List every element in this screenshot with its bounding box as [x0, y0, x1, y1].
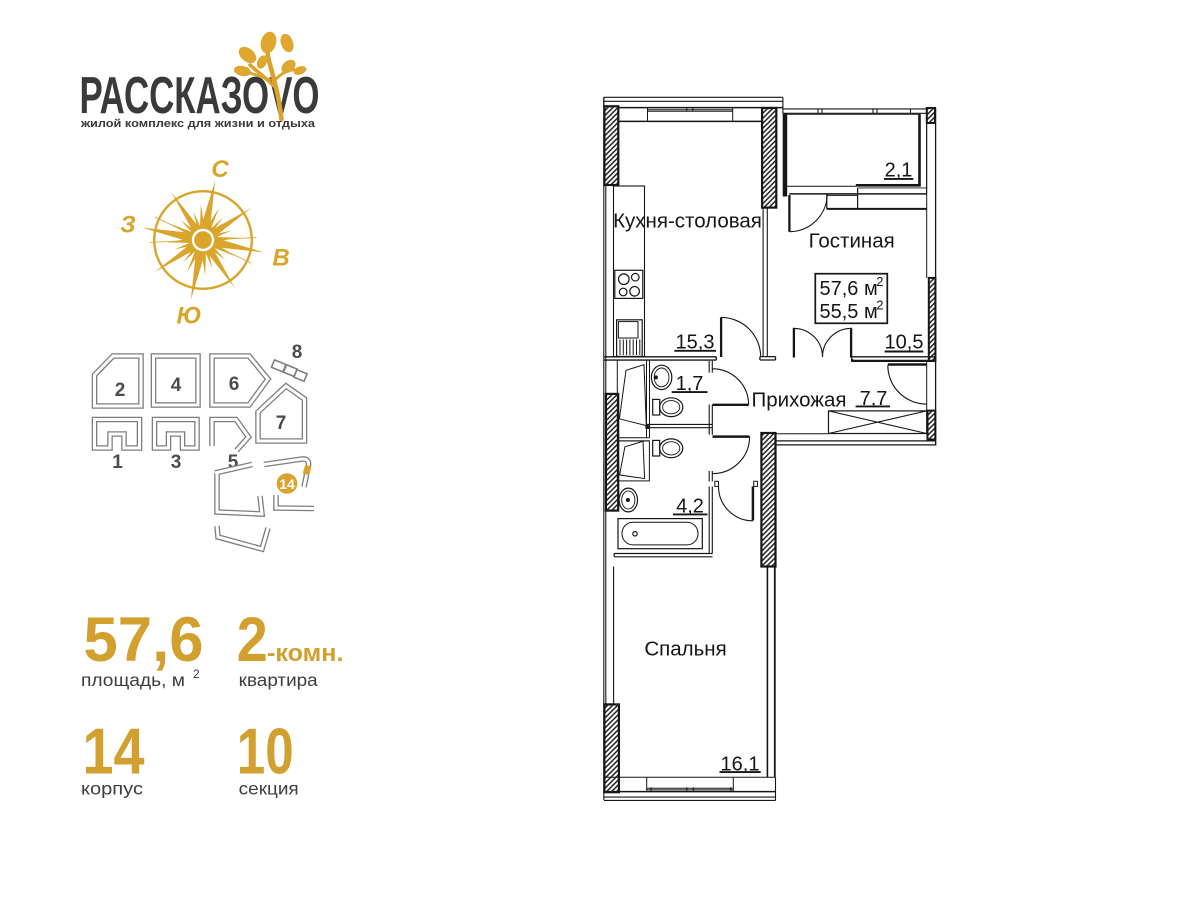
- svg-text:Спальня: Спальня: [644, 637, 726, 660]
- svg-text:4: 4: [171, 375, 182, 396]
- svg-text:-комн.: -комн.: [267, 640, 344, 667]
- svg-text:10,5: 10,5: [885, 332, 924, 354]
- svg-text:Кухня-столовая: Кухня-столовая: [613, 210, 762, 233]
- svg-text:8: 8: [292, 342, 303, 363]
- svg-text:В: В: [272, 245, 289, 272]
- svg-text:3: 3: [171, 452, 182, 473]
- svg-text:2: 2: [876, 297, 883, 312]
- svg-text:Гостиная: Гостиная: [809, 230, 895, 253]
- svg-text:2: 2: [115, 380, 126, 401]
- svg-text:57,6: 57,6: [84, 605, 204, 675]
- svg-text:6: 6: [229, 374, 240, 395]
- svg-text:Прихожая: Прихожая: [752, 388, 847, 411]
- svg-text:14: 14: [279, 476, 295, 492]
- svg-text:С: С: [211, 156, 229, 183]
- svg-text:7: 7: [276, 413, 287, 434]
- svg-text:2: 2: [237, 605, 268, 675]
- svg-text:площадь, м: площадь, м: [81, 670, 185, 690]
- svg-text:2: 2: [193, 667, 200, 681]
- svg-text:14: 14: [83, 716, 145, 788]
- svg-text:РАССКАЗОVO: РАССКАЗОVO: [80, 67, 320, 125]
- svg-text:корпус: корпус: [81, 779, 143, 799]
- svg-text:жилой комплекс для жизни и отд: жилой комплекс для жизни и отдыха: [80, 118, 316, 130]
- svg-text:секция: секция: [239, 779, 299, 799]
- svg-text:55,5 м: 55,5 м: [820, 301, 878, 323]
- svg-text:1: 1: [112, 452, 123, 473]
- svg-text:квартира: квартира: [239, 670, 318, 690]
- svg-text:Ю: Ю: [176, 303, 201, 330]
- svg-text:2: 2: [876, 274, 883, 289]
- svg-text:З: З: [120, 212, 135, 239]
- svg-text:57,6 м: 57,6 м: [820, 278, 878, 300]
- svg-text:10: 10: [237, 716, 294, 788]
